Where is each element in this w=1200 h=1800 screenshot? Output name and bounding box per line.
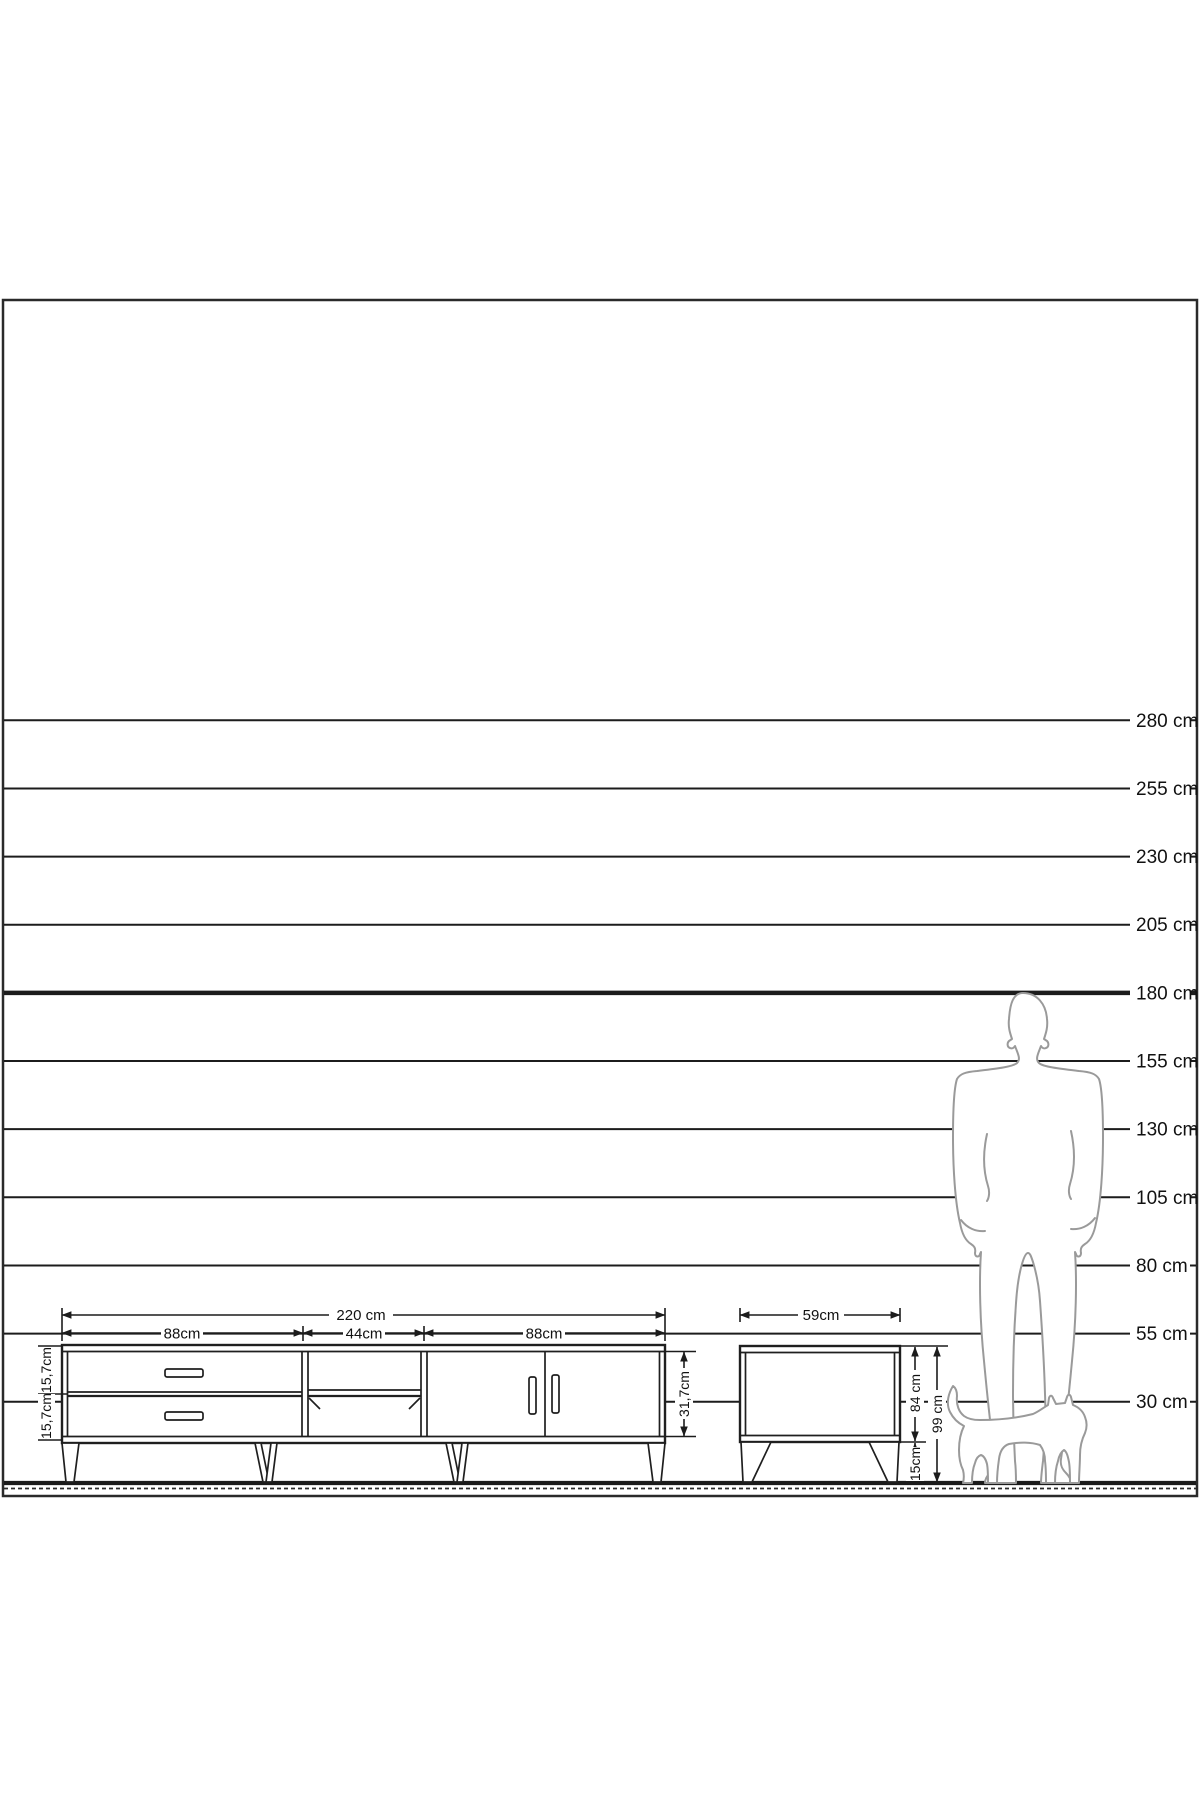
tv-section3-label: 88cm xyxy=(526,1326,563,1343)
table-leg-height-label: 15cm xyxy=(907,1447,923,1481)
tv-stand-door-handle-left xyxy=(529,1377,536,1414)
height-label: 255 cm xyxy=(1136,779,1198,800)
dimension-diagram-page: 280 cm255 cm230 cm205 cm180 cm155 cm130 … xyxy=(0,0,1200,1800)
tv-stand-drawer-handle-bottom xyxy=(165,1412,203,1420)
tv-stand-drawer-handle-top xyxy=(165,1369,203,1377)
tv-drawer2-height-label: 15,7cm xyxy=(38,1393,54,1439)
height-label: 55 cm xyxy=(1136,1324,1188,1345)
tv-section1-label: 88cm xyxy=(164,1326,201,1343)
tv-carcass-height-label: 31,7cm xyxy=(676,1371,692,1417)
height-label: 180 cm xyxy=(1136,983,1198,1004)
height-label: 105 cm xyxy=(1136,1188,1198,1209)
tv-stand-door-handle-right xyxy=(552,1375,559,1413)
height-label: 80 cm xyxy=(1136,1256,1188,1277)
dimension-diagram: 280 cm255 cm230 cm205 cm180 cm155 cm130 … xyxy=(0,0,1200,1800)
height-label: 230 cm xyxy=(1136,847,1198,868)
wall-frame xyxy=(3,300,1197,1496)
height-label: 30 cm xyxy=(1136,1392,1188,1413)
height-label: 205 cm xyxy=(1136,915,1198,936)
table-width-label: 59cm xyxy=(803,1307,840,1324)
tv-drawer1-height-label: 15,7cm xyxy=(38,1347,54,1393)
tv-section2-label: 44cm xyxy=(346,1326,383,1343)
height-label: 280 cm xyxy=(1136,711,1198,732)
table-body-height-label: 84 cm xyxy=(907,1374,923,1412)
tv-width-label: 220 cm xyxy=(336,1307,385,1324)
height-label: 155 cm xyxy=(1136,1052,1198,1073)
height-label: 130 cm xyxy=(1136,1120,1198,1141)
side-table-carcass xyxy=(740,1346,900,1442)
tv-stand-carcass xyxy=(62,1345,665,1443)
table-total-height-label: 99 cm xyxy=(929,1395,945,1433)
